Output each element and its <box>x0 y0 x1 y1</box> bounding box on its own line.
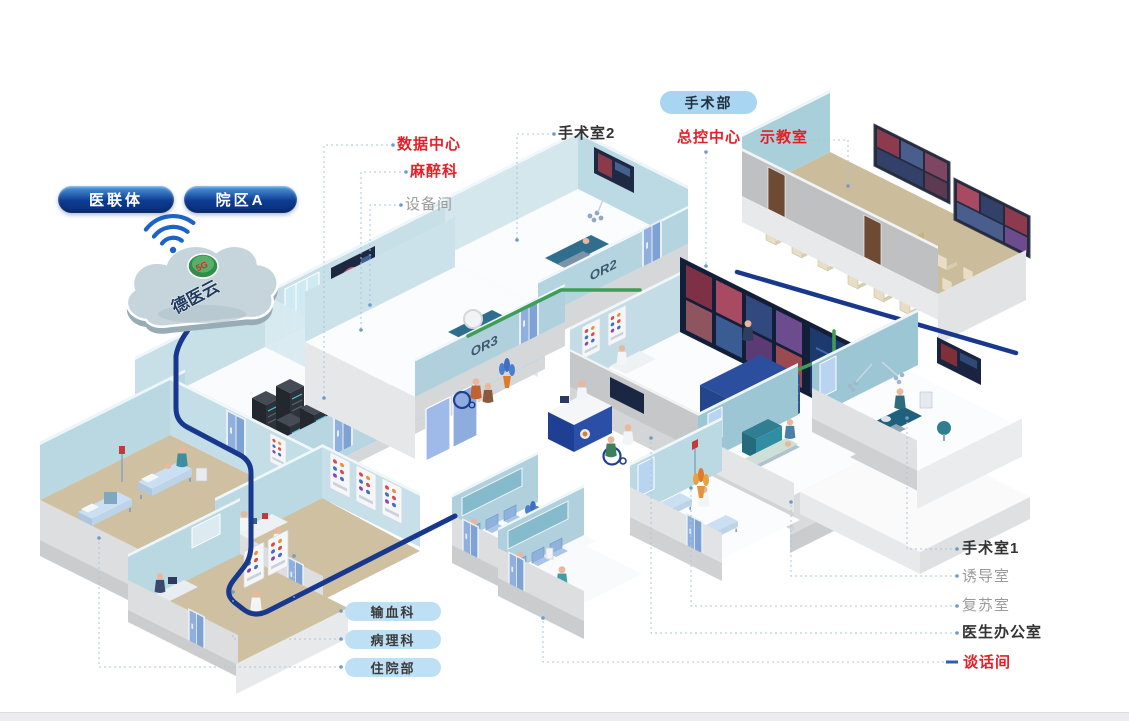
callout-recovery-room: 复苏室 <box>962 598 1010 614</box>
callout-doctor-office: 医生办公室 <box>962 625 1042 641</box>
pill-blood-transfusion: 输血科 <box>345 602 441 621</box>
cloud-platform: 德医云 5G <box>127 213 278 334</box>
badge-surgery-department: 手术部 <box>660 91 757 114</box>
callout-induction-room: 诱导室 <box>962 569 1010 585</box>
callout-talk-room: 谈话间 <box>963 655 1011 671</box>
rooms-talk <box>452 452 642 639</box>
callout-equipment-room: 设备间 <box>405 197 453 213</box>
classroom-door <box>864 215 881 266</box>
badge-campus-a: 院区A <box>184 186 297 213</box>
or1-stool <box>937 421 951 435</box>
footer-strip <box>0 712 1129 721</box>
callout-data-center: 数据中心 <box>397 137 461 153</box>
pill-inpatient: 住院部 <box>345 658 441 677</box>
callout-operating-room-1: 手术室1 <box>962 541 1019 557</box>
nightstand <box>104 492 117 504</box>
iv-bag <box>119 446 125 454</box>
water-dispenser <box>546 548 553 559</box>
or1-cart <box>920 392 932 408</box>
badge-5g: 5G <box>188 254 218 278</box>
pill-pathology: 病理科 <box>345 630 441 649</box>
callout-master-control: 总控中心 <box>677 130 741 146</box>
reception-monitor <box>560 396 569 403</box>
corridor-double-door <box>426 397 450 461</box>
hospital-isometric-diagram: OR2 OR3 <box>0 0 1129 721</box>
callout-anesthesiology: 麻醉科 <box>410 164 458 180</box>
callout-demo-classroom: 示教室 <box>760 130 808 146</box>
classroom-door <box>768 167 785 218</box>
callout-operating-room-2: 手术室2 <box>558 126 615 142</box>
illustration-canvas: OR2 OR3 <box>0 0 1129 721</box>
badge-medical-alliance: 医联体 <box>58 186 174 213</box>
